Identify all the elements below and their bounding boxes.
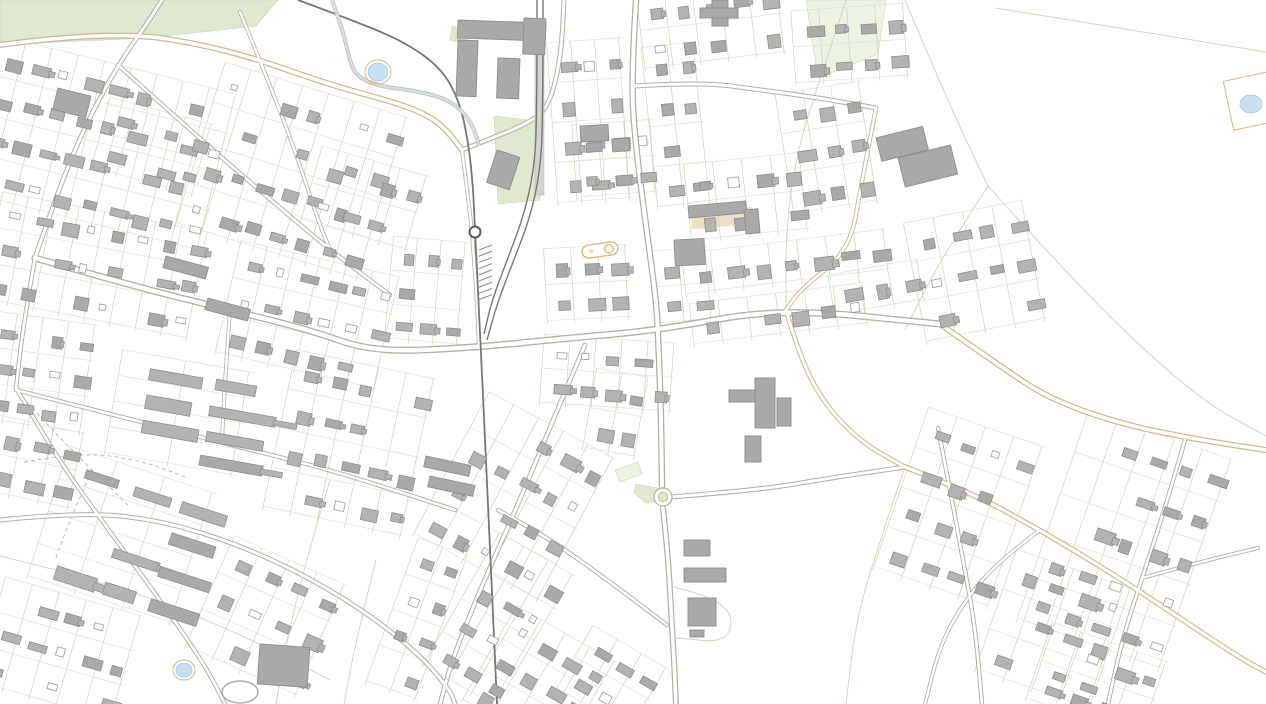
oval-track xyxy=(222,681,258,703)
map-viewport[interactable] xyxy=(0,0,1266,704)
landmark-building xyxy=(777,398,791,426)
landmark-building xyxy=(700,8,738,18)
pond xyxy=(176,663,192,677)
map-marker-circle xyxy=(470,227,481,238)
landmark-building xyxy=(257,644,310,687)
pond xyxy=(368,63,388,81)
roundabout xyxy=(654,488,672,506)
landmark-building xyxy=(523,18,546,55)
landmark-building xyxy=(684,540,710,556)
landmark-building xyxy=(690,630,704,637)
landmark-building xyxy=(688,598,716,626)
landmark-building xyxy=(684,568,726,582)
landmark-building xyxy=(755,378,775,428)
pond xyxy=(1240,95,1262,113)
landmark-building xyxy=(674,238,705,266)
landmark-building xyxy=(456,40,478,97)
map-canvas[interactable] xyxy=(0,0,1266,704)
landmark-building xyxy=(580,125,609,142)
landmark-building xyxy=(745,436,761,462)
landmark-building xyxy=(744,209,760,234)
landmark-building xyxy=(729,390,755,402)
landmark-building xyxy=(497,58,520,99)
